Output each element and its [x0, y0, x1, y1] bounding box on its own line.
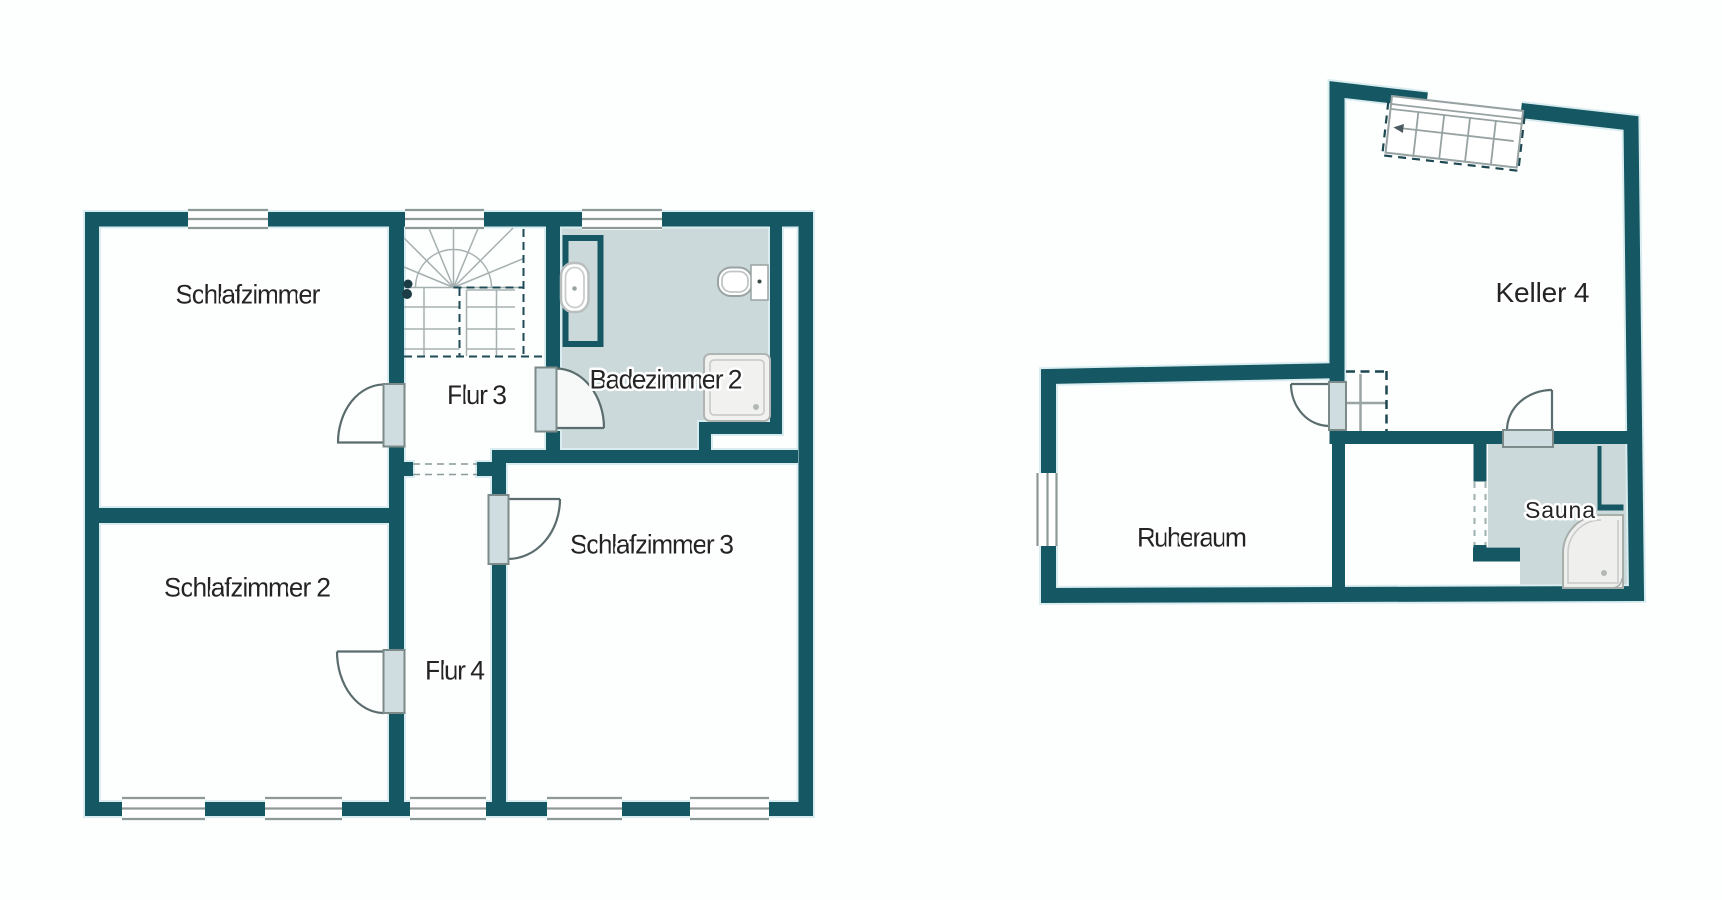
svg-text:Badezimmer 2: Badezimmer 2 [590, 365, 743, 395]
svg-text:Schlafzimmer 3: Schlafzimmer 3 [570, 530, 734, 560]
svg-text:Flur 3: Flur 3 [447, 380, 507, 410]
svg-text:Schlafzimmer: Schlafzimmer [176, 280, 321, 310]
svg-text:Ruheraum: Ruheraum [1137, 523, 1247, 553]
svg-text:Flur 4: Flur 4 [425, 656, 485, 686]
svg-text:Schlafzimmer 2: Schlafzimmer 2 [164, 573, 331, 603]
svg-text:Keller 4: Keller 4 [1496, 277, 1590, 308]
svg-text:Sauna: Sauna [1525, 497, 1595, 523]
